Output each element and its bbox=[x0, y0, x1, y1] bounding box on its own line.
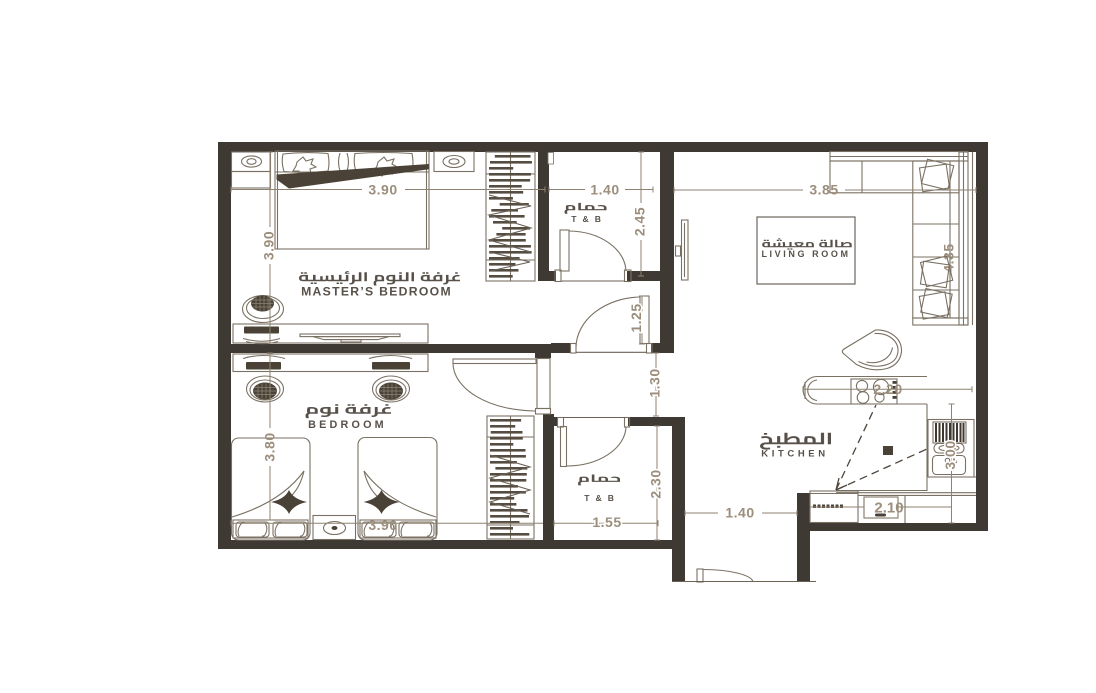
svg-text:3.90: 3.90 bbox=[368, 182, 397, 198]
svg-text:1.40: 1.40 bbox=[725, 505, 754, 521]
svg-text:3.00: 3.00 bbox=[942, 440, 958, 469]
svg-text:BEDROOM: BEDROOM bbox=[308, 419, 387, 431]
svg-text:3.90: 3.90 bbox=[261, 231, 277, 260]
svg-text:3.80: 3.80 bbox=[262, 432, 278, 461]
svg-text:2.30: 2.30 bbox=[648, 469, 664, 498]
svg-text:MASTER’S BEDROOM: MASTER’S BEDROOM bbox=[301, 284, 452, 298]
svg-text:3.90: 3.90 bbox=[368, 517, 397, 533]
svg-text:1.40: 1.40 bbox=[590, 182, 619, 198]
svg-text:2.45: 2.45 bbox=[632, 207, 648, 236]
svg-text:T & B: T & B bbox=[584, 493, 615, 503]
svg-text:3.85: 3.85 bbox=[809, 182, 838, 198]
svg-text:1.55: 1.55 bbox=[592, 514, 621, 530]
svg-text:2.20: 2.20 bbox=[873, 381, 902, 397]
svg-text:LIVING ROOM: LIVING ROOM bbox=[761, 249, 850, 259]
svg-text:1.25: 1.25 bbox=[628, 303, 644, 332]
svg-text:1.30: 1.30 bbox=[647, 368, 663, 397]
svg-text:KITCHEN: KITCHEN bbox=[761, 448, 828, 459]
svg-text:T & B: T & B bbox=[571, 214, 602, 224]
